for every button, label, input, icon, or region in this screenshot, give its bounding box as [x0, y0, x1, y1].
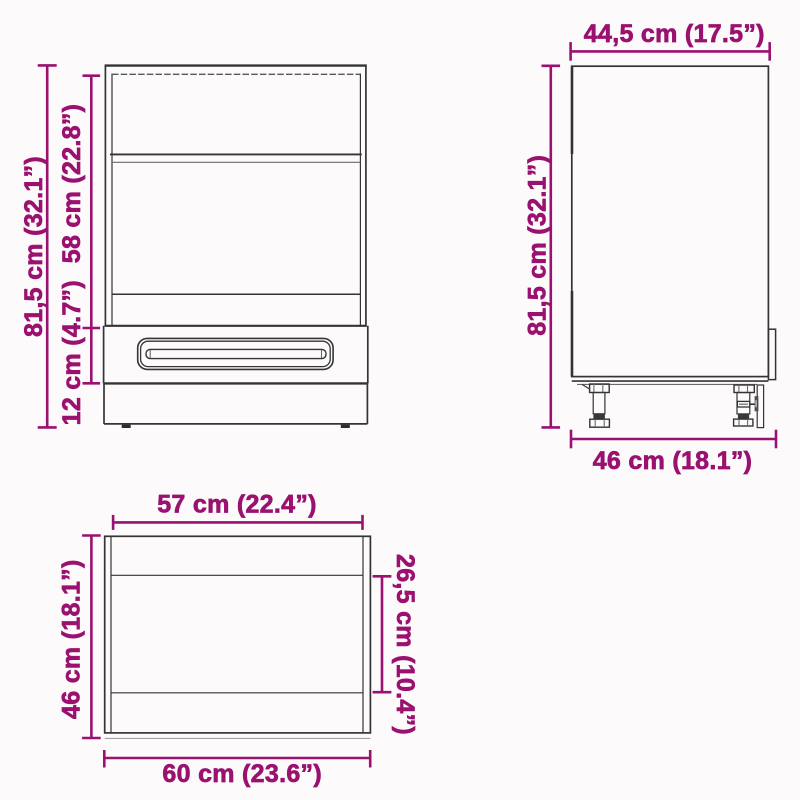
svg-text:57 cm (22.4”): 57 cm (22.4”) — [157, 491, 317, 519]
svg-text:81,5 cm (32.1”): 81,5 cm (32.1”) — [20, 156, 48, 337]
svg-text:46 cm (18.1”): 46 cm (18.1”) — [58, 559, 86, 719]
svg-text:81,5 cm (32.1”): 81,5 cm (32.1”) — [524, 155, 552, 336]
svg-text:60 cm (23.6”): 60 cm (23.6”) — [162, 760, 322, 788]
svg-text:46 cm (18.1”): 46 cm (18.1”) — [593, 447, 753, 475]
svg-text:44,5 cm (17.5”): 44,5 cm (17.5”) — [584, 20, 765, 48]
svg-text:12 cm (4.7”): 12 cm (4.7”) — [58, 280, 86, 425]
svg-text:26,5 cm (10.4”): 26,5 cm (10.4”) — [391, 554, 419, 735]
svg-text:58 cm (22.8”): 58 cm (22.8”) — [58, 104, 86, 264]
